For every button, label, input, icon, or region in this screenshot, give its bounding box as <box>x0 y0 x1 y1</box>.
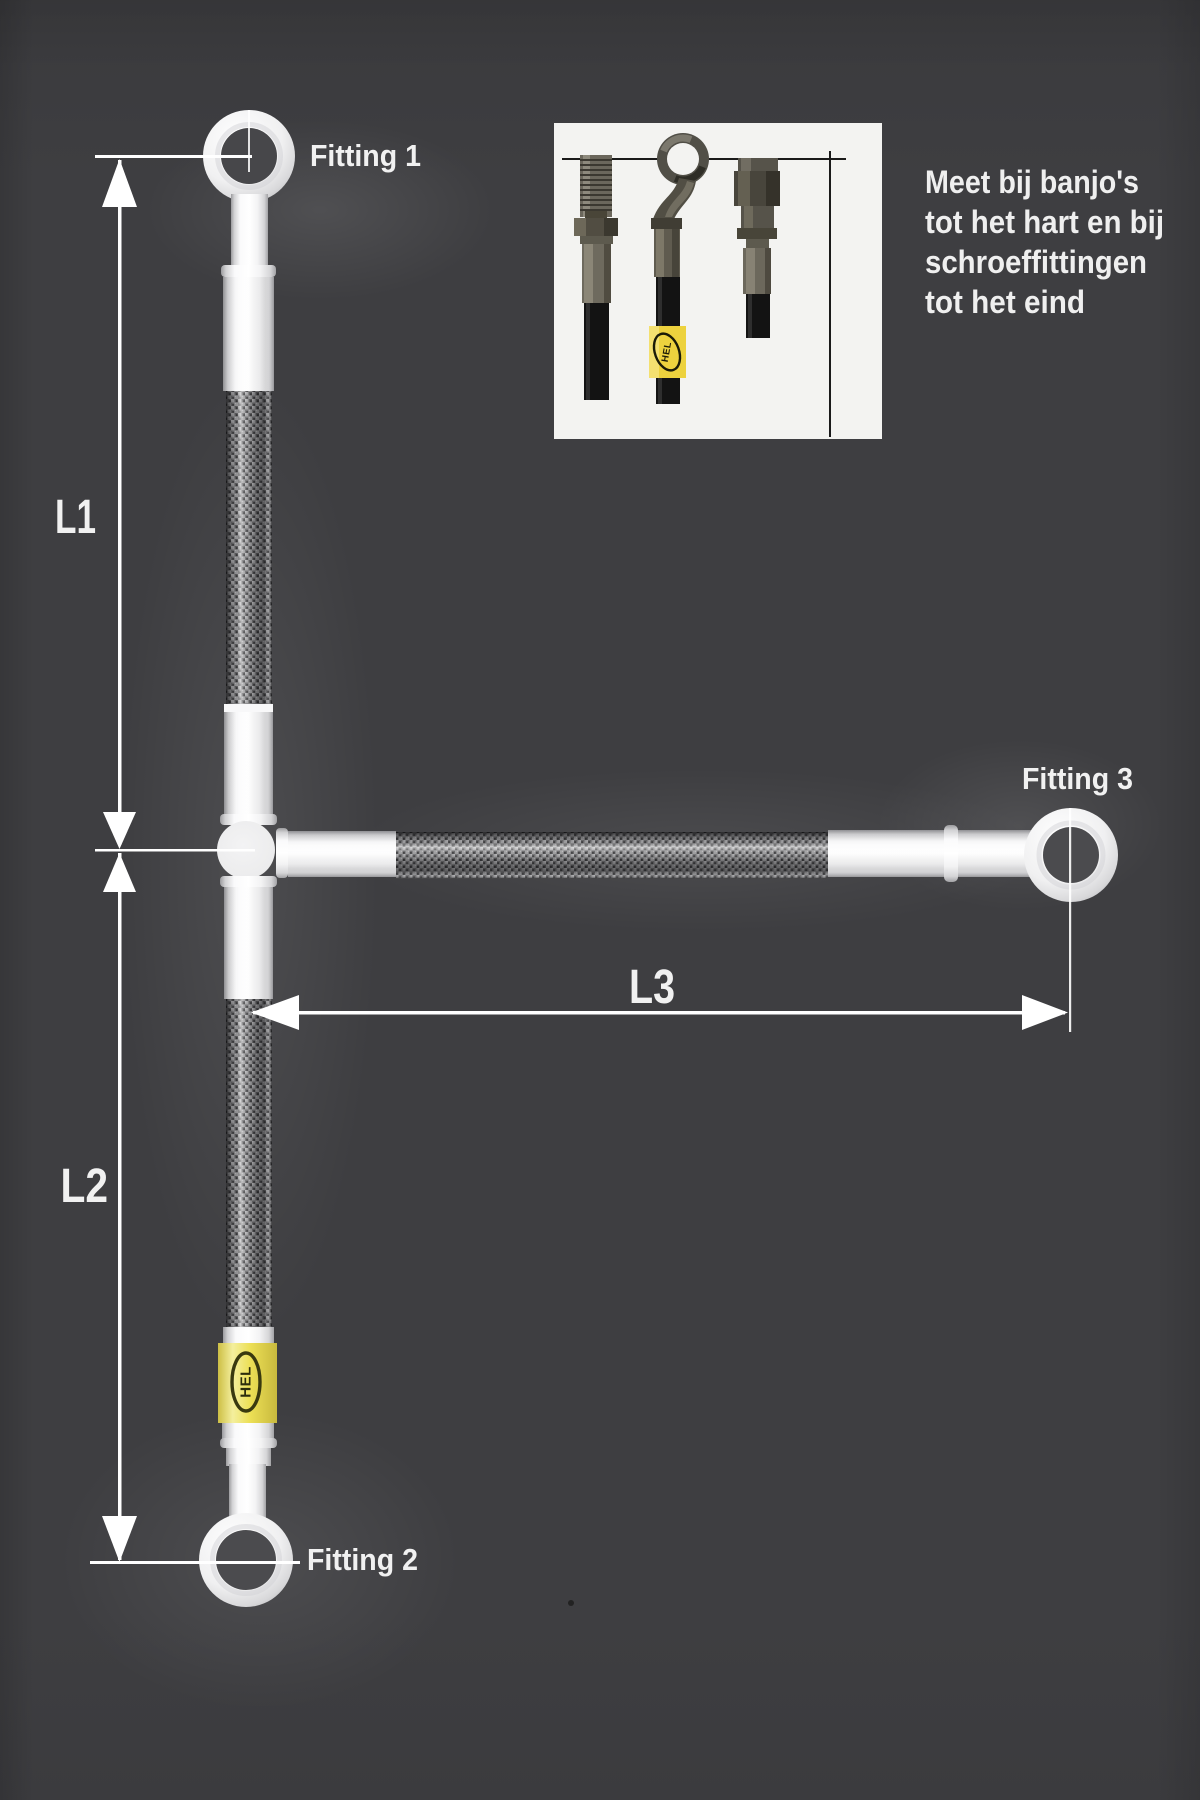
svg-text:tot het eind: tot het eind <box>925 284 1085 320</box>
svg-text:L2: L2 <box>61 1160 109 1213</box>
svg-text:Meet bij banjo's: Meet bij banjo's <box>925 164 1139 200</box>
svg-text:HEL: HEL <box>238 1366 255 1398</box>
svg-text:tot het hart en bij: tot het hart en bij <box>925 204 1164 240</box>
svg-text:L3: L3 <box>629 961 675 1014</box>
svg-text:Fitting 2: Fitting 2 <box>307 1542 418 1577</box>
svg-text:Fitting 1: Fitting 1 <box>310 138 421 173</box>
svg-text:schroeffittingen: schroeffittingen <box>925 244 1147 280</box>
svg-text:Fitting 3: Fitting 3 <box>1022 761 1133 796</box>
svg-text:L1: L1 <box>55 491 96 544</box>
